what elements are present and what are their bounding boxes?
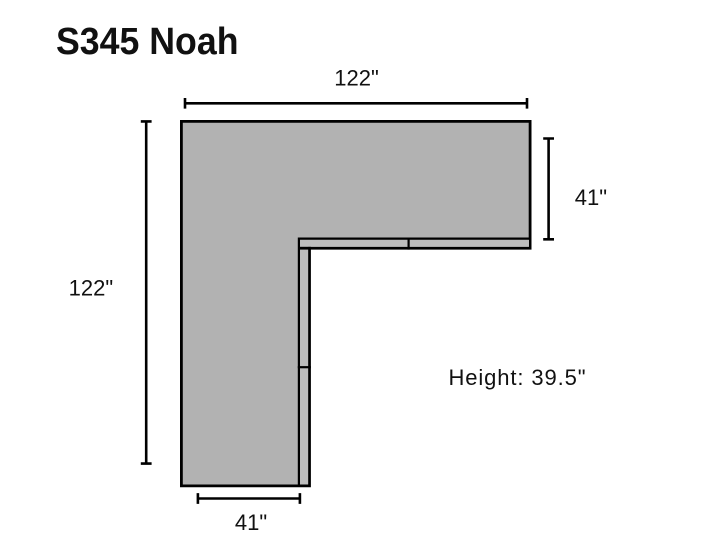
svg-text:Height: 39.5": Height: 39.5" [449, 365, 586, 390]
svg-text:41": 41" [575, 185, 607, 210]
svg-text:122": 122" [69, 276, 114, 301]
svg-text:S345 Noah: S345 Noah [56, 21, 239, 63]
svg-text:122": 122" [334, 66, 379, 91]
svg-text:41": 41" [235, 510, 267, 535]
